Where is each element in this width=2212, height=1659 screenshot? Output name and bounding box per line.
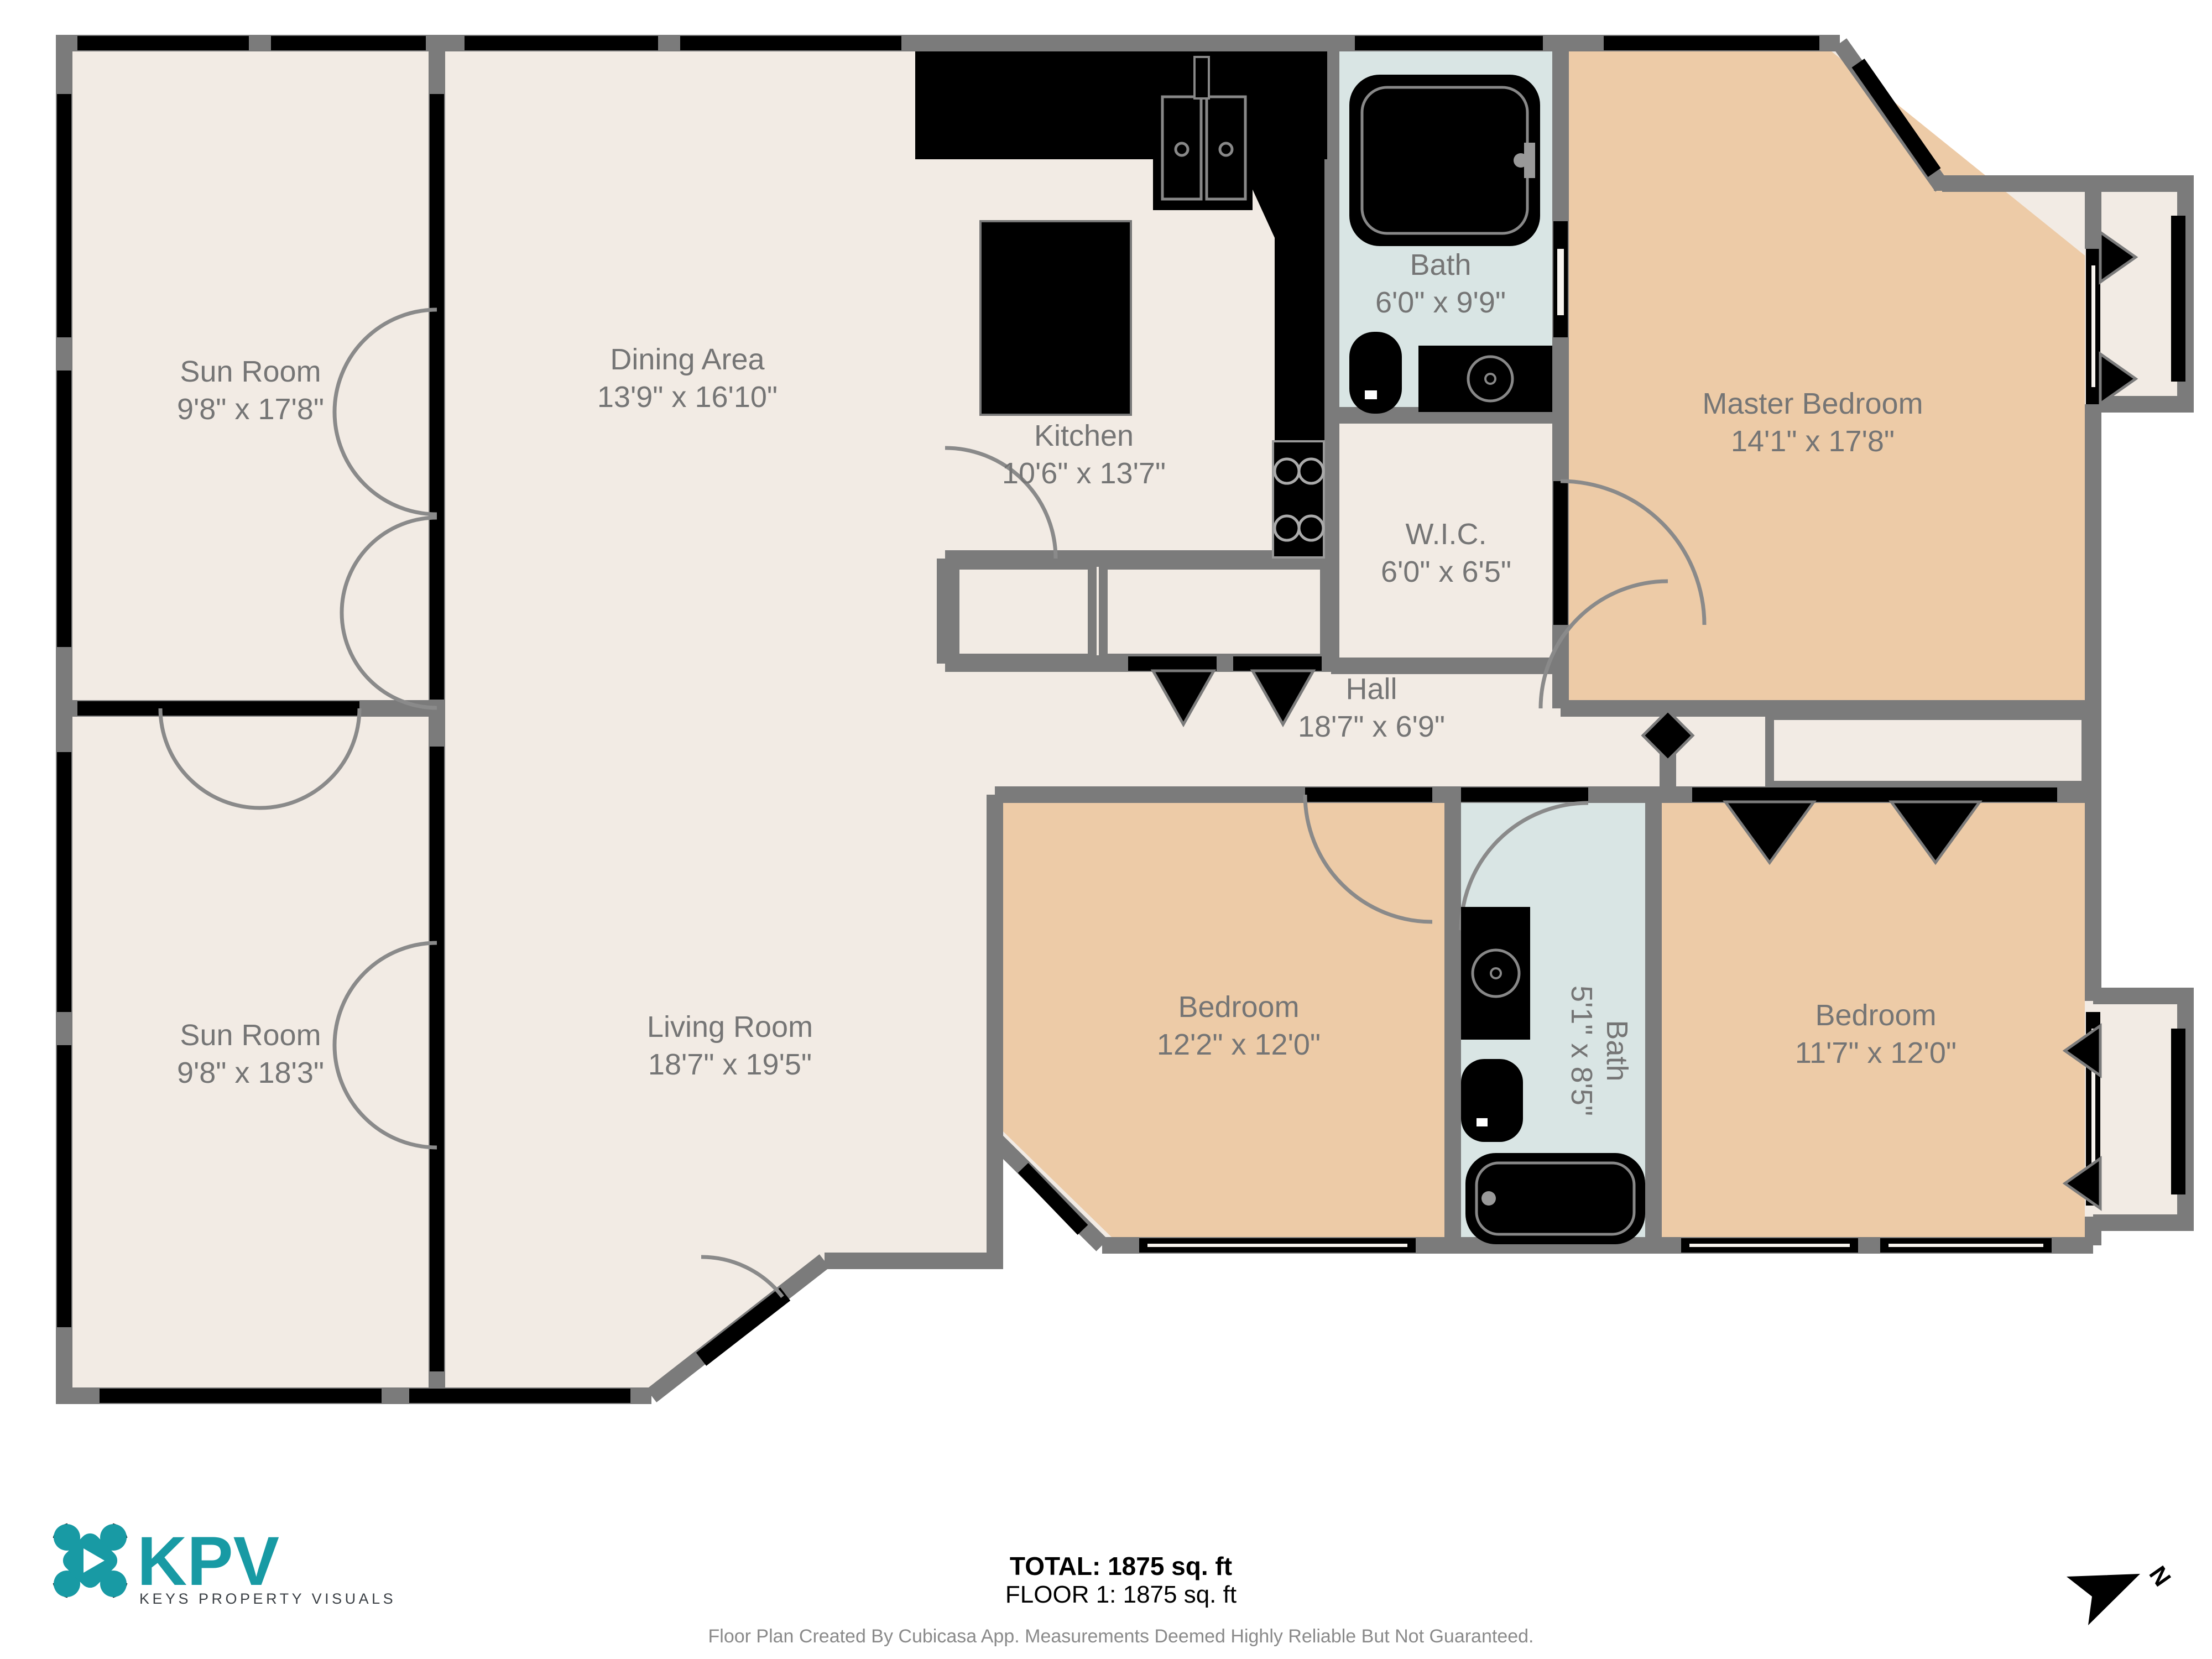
logo-brand-text: KPV [137, 1523, 279, 1600]
label-master-name: Master Bedroom [1702, 387, 1923, 420]
kpv-logo: KPV KEYS PROPERTY VISUALS [54, 1523, 396, 1607]
label-dining-dims: 13'9" x 16'10" [597, 380, 778, 414]
bathtub-icon [1465, 1153, 1645, 1244]
label-bath-mid-name: Bath [1600, 1020, 1634, 1081]
label-wic-dims: 6'0" x 6'5" [1381, 555, 1511, 588]
label-dining-name: Dining Area [610, 343, 765, 376]
footer-floor: FLOOR 1: 1875 sq. ft [1005, 1581, 1237, 1608]
footer-disclaimer: Floor Plan Created By Cubicasa App. Meas… [708, 1626, 1534, 1647]
toilet-icon [1461, 1059, 1523, 1142]
label-hall-dims: 18'7" x 6'9" [1298, 710, 1445, 743]
pantry-closet-right [1103, 565, 1324, 658]
label-bedroom-right-name: Bedroom [1815, 999, 1936, 1032]
pantry-closet-left [955, 565, 1092, 658]
room-master-bedroom [1569, 51, 2085, 700]
footer: TOTAL: 1875 sq. ft FLOOR 1: 1875 sq. ft … [708, 1552, 1534, 1647]
vanity-sink-icon [1418, 346, 1552, 412]
label-living-dims: 18'7" x 19'5" [648, 1048, 812, 1081]
logo-tagline-text: KEYS PROPERTY VISUALS [139, 1590, 396, 1607]
label-kitchen-dims: 10'6" x 13'7" [1002, 457, 1166, 490]
label-bath-top-name: Bath [1410, 248, 1471, 281]
label-bath-top-dims: 6'0" x 9'9" [1375, 286, 1506, 319]
compass-north-label: N [2144, 1561, 2176, 1591]
drone-icon [54, 1524, 127, 1597]
label-sunroom-bottom-dims: 9'8" x 18'3" [177, 1056, 324, 1089]
label-hall-name: Hall [1345, 672, 1397, 706]
label-sunroom-top-dims: 9'8" x 17'8" [177, 393, 324, 426]
label-kitchen-name: Kitchen [1034, 419, 1134, 452]
label-master-dims: 14'1" x 17'8" [1731, 425, 1895, 458]
label-bath-mid-dims: 5'1" x 8'5" [1565, 985, 1598, 1116]
footer-total: TOTAL: 1875 sq. ft [1010, 1552, 1232, 1580]
vanity-sink-icon [1461, 907, 1530, 1040]
hall-closet [1770, 716, 2086, 785]
label-bedroom-left-name: Bedroom [1178, 990, 1299, 1024]
label-living-name: Living Room [647, 1010, 813, 1044]
label-bedroom-left-dims: 12'2" x 12'0" [1157, 1028, 1321, 1061]
compass-arrow-icon [2067, 1574, 2140, 1625]
toilet-icon [1349, 332, 1402, 414]
label-sunroom-bottom-name: Sun Room [180, 1019, 321, 1052]
label-sunroom-top-name: Sun Room [180, 355, 321, 388]
label-bedroom-right-dims: 11'7" x 12'0" [1795, 1036, 1957, 1070]
kitchen-island [980, 221, 1131, 415]
compass: N [2067, 1561, 2176, 1625]
floor-plan-canvas: Sun Room 9'8" x 17'8" Dining Area 13'9" … [0, 0, 2212, 1659]
label-wic-name: W.I.C. [1406, 518, 1487, 551]
bathtub-icon [1349, 75, 1540, 246]
stove-icon [1273, 441, 1324, 557]
